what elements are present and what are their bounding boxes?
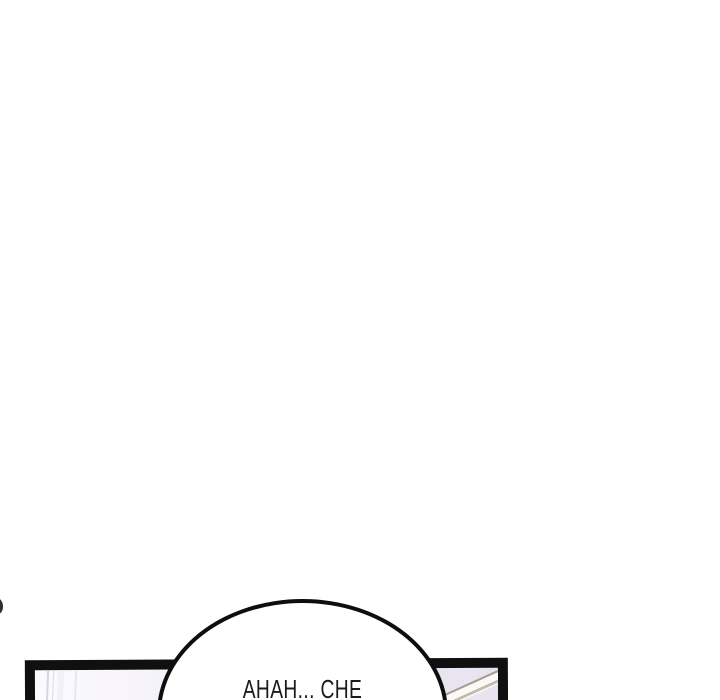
wall-line <box>73 668 78 700</box>
wall-line <box>51 668 55 700</box>
speech-bubble-text: AHAH... CHE <box>198 674 407 700</box>
wall-highlight-band <box>56 668 65 700</box>
webtoon-strip: AHAH... CHE <box>0 0 720 700</box>
offscreen-bubble-edge <box>0 597 4 614</box>
wall-line <box>45 668 50 700</box>
speech-bubble: AHAH... CHE <box>157 599 448 700</box>
